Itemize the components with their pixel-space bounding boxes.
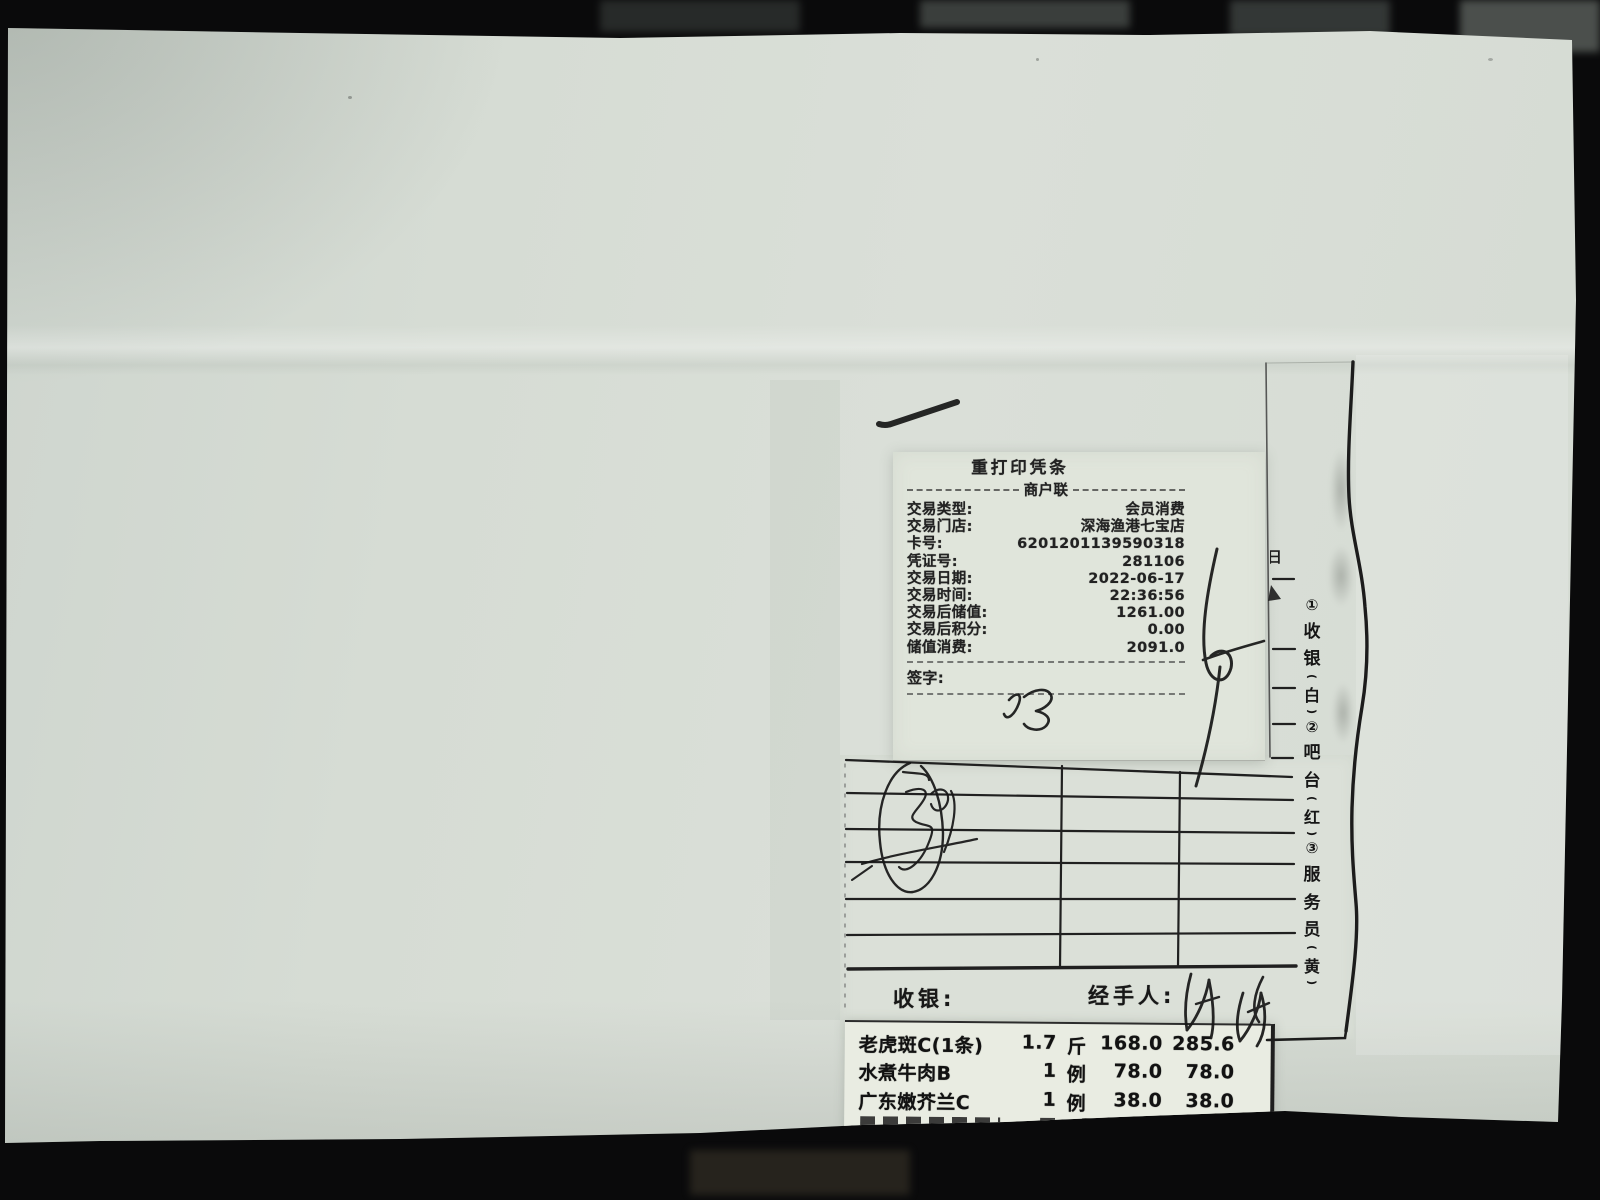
item-name: 老虎斑C(1条) <box>859 1030 1017 1058</box>
paper-shading <box>770 380 840 1020</box>
copy-labels-column: ① 收 银 ( 白 ) ② 吧 台 ( 红 ) ③ 服 务 员 ( 黄 ) <box>1297 598 1327 980</box>
handwriting-overlay <box>0 0 1600 1200</box>
dashed-separator <box>907 693 1185 695</box>
row-value: 22:36:56 <box>973 588 1185 605</box>
receipt-row: 凭证号:281106 <box>907 554 1185 571</box>
copy-label-char: 服 <box>1304 867 1321 884</box>
receipt-title: 重打印凭条 <box>881 454 1159 478</box>
background-cloth-blob <box>690 1150 910 1195</box>
background-cloth-blob <box>1230 0 1390 36</box>
item-row: 水煮牛肉B 1 例 78.0 78.0 <box>858 1058 1258 1088</box>
cashier-label: 收银: <box>893 983 955 1013</box>
paper-shading <box>0 1000 1600 1145</box>
background-cloth-blob <box>920 0 1130 28</box>
item-unit: 斤 <box>1057 1032 1097 1059</box>
paren-open: ( <box>1306 674 1317 679</box>
paren-close: ) <box>1306 709 1317 714</box>
row-label: 交易日期: <box>907 571 973 588</box>
item-price: 38.0 <box>1096 1089 1162 1117</box>
paren-close: ) <box>1306 831 1317 836</box>
item-row: 广东嫩芥兰C 1 例 38.0 38.0 <box>858 1087 1258 1117</box>
row-label: 储值消费: <box>907 640 973 657</box>
copy-label-paren-group: ( 白 ) <box>1304 679 1320 709</box>
copy-label-char: 收 <box>1304 624 1321 641</box>
receipt-rows: 交易类型:会员消费 交易门店:深海渔港七宝店 卡号:62012011395903… <box>907 502 1185 657</box>
row-label: 交易类型: <box>907 502 973 519</box>
paper-shading <box>0 0 560 420</box>
copy-label-char: 台 <box>1304 773 1321 790</box>
receipt-row: 交易后积分:0.00 <box>907 622 1185 639</box>
toner-smudge <box>1332 682 1354 744</box>
paper-sheet: 重打印凭条 商户联 交易类型:会员消费 交易门店:深海渔港七宝店 卡号:6201… <box>0 0 1600 1200</box>
signature-label: 签字: <box>907 667 1185 689</box>
dash-rule <box>1073 489 1185 491</box>
row-value: 281106 <box>958 554 1185 571</box>
copy-label-char: 红 <box>1304 804 1320 828</box>
paper-speck <box>1488 58 1493 61</box>
item-strip: 老虎斑C(1条) 1.7 斤 168.0 285.6 水煮牛肉B 1 例 78.… <box>844 1020 1275 1138</box>
fragment-char-text: 日 <box>1270 546 1291 567</box>
item-qty: 1.7 <box>1017 1032 1057 1059</box>
item-price: 78.0 <box>1096 1060 1162 1088</box>
row-value: 1261.00 <box>988 605 1185 622</box>
paren-open: ( <box>1306 945 1317 950</box>
receipt-row: 储值消费:2091.0 <box>907 640 1185 657</box>
paper-fold-crease <box>0 325 1600 375</box>
copy-label-char: ① <box>1306 598 1319 613</box>
paren-close: ) <box>1306 980 1317 985</box>
item-row: 老虎斑C(1条) 1.7 斤 168.0 285.6 <box>859 1030 1259 1060</box>
row-label: 凭证号: <box>907 554 958 571</box>
paper-speck <box>348 96 352 99</box>
copy-label-paren-group: ( 黄 ) <box>1304 950 1320 980</box>
toner-smudge <box>1330 448 1352 532</box>
paper-shading <box>1356 355 1568 1055</box>
handler-label: 经手人: <box>1088 980 1175 1010</box>
receipt-row: 交易日期:2022-06-17 <box>907 571 1185 588</box>
row-label: 交易时间: <box>907 588 973 605</box>
receipt-subtitle-row: 商户联 <box>907 479 1185 500</box>
item-name: 广东嫩芥兰C <box>858 1087 1016 1115</box>
receipt-row: 交易门店:深海渔港七宝店 <box>907 519 1185 536</box>
dash-rule <box>907 489 1019 491</box>
item-amount: 38.0 <box>1162 1090 1234 1118</box>
row-label: 交易后积分: <box>907 622 988 639</box>
row-value: 2091.0 <box>973 640 1185 657</box>
receipt-row: 卡号:6201201139590318 <box>907 536 1185 553</box>
receipt-row: 交易后储值:1261.00 <box>907 605 1185 622</box>
copy-label-char: 银 <box>1304 651 1321 668</box>
item-amount: 285.6 <box>1163 1033 1235 1061</box>
copy-label-char: 黄 <box>1304 953 1320 977</box>
row-value: 6201201139590318 <box>943 536 1185 553</box>
dashed-separator <box>907 661 1185 663</box>
row-label: 交易后储值: <box>907 605 988 622</box>
partial-item-row <box>860 1116 1252 1130</box>
copy-label-char: 吧 <box>1304 745 1321 762</box>
copy-label-char: 员 <box>1304 922 1321 939</box>
row-value: 深海渔港七宝店 <box>973 519 1185 536</box>
receipt-row: 交易类型:会员消费 <box>907 502 1185 519</box>
copy-label-char: ② <box>1306 720 1319 735</box>
receipt-row: 交易时间:22:36:56 <box>907 588 1185 605</box>
item-price: 168.0 <box>1097 1032 1163 1060</box>
background-cloth-blob <box>600 0 800 32</box>
item-unit: 例 <box>1056 1089 1096 1116</box>
member-receipt-content: 重打印凭条 商户联 交易类型:会员消费 交易门店:深海渔港七宝店 卡号:6201… <box>907 454 1185 695</box>
item-name: 水煮牛肉B <box>858 1058 1016 1086</box>
row-label: 交易门店: <box>907 519 973 536</box>
row-value: 0.00 <box>988 622 1185 639</box>
toner-smudge <box>1328 545 1354 607</box>
row-value: 会员消费 <box>973 502 1185 519</box>
copy-label-paren-group: ( 红 ) <box>1304 801 1320 831</box>
copy-label-char: 务 <box>1304 895 1321 912</box>
item-amount: 78.0 <box>1162 1061 1234 1089</box>
paper-speck <box>1036 58 1039 61</box>
page-fragment-char: 日 <box>1270 546 1291 567</box>
receipt-subtitle: 商户联 <box>1024 479 1069 500</box>
copy-label-char: 白 <box>1304 682 1320 706</box>
item-qty: 1 <box>1016 1088 1056 1115</box>
item-unit: 例 <box>1056 1060 1096 1087</box>
paren-open: ( <box>1306 796 1317 801</box>
item-qty: 1 <box>1016 1059 1056 1086</box>
row-value: 2022-06-17 <box>973 571 1185 588</box>
copy-label-char: ③ <box>1306 841 1319 856</box>
row-label: 卡号: <box>907 536 943 553</box>
photo-frame: 重打印凭条 商户联 交易类型:会员消费 交易门店:深海渔港七宝店 卡号:6201… <box>0 0 1600 1200</box>
